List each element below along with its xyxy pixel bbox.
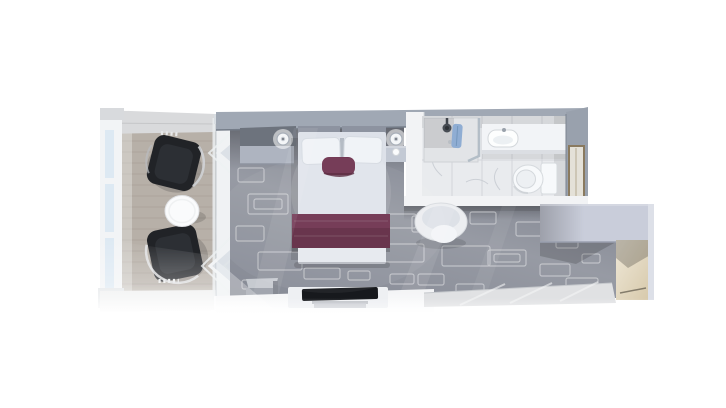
floorplan-render bbox=[0, 0, 726, 408]
bottom-edge-fade bbox=[90, 298, 662, 324]
right-edge-cap bbox=[648, 204, 654, 300]
railing-glass-panel bbox=[105, 130, 114, 178]
walk-in-shower bbox=[424, 118, 479, 162]
cup bbox=[393, 149, 400, 156]
counter-front-edge bbox=[482, 150, 566, 154]
toilet-seat bbox=[517, 170, 536, 188]
railing-glass-panel bbox=[105, 184, 114, 232]
sink-basin bbox=[493, 136, 513, 145]
shower-head-center bbox=[445, 126, 449, 130]
ambient-light bbox=[215, 157, 445, 293]
railing-top-cap bbox=[100, 108, 124, 120]
vanity bbox=[482, 124, 566, 159]
shower-drain bbox=[448, 140, 452, 144]
closet-shade bbox=[540, 204, 584, 242]
counter-shadow bbox=[482, 154, 566, 159]
stateroom-floorplan-svg bbox=[0, 0, 726, 408]
faucet bbox=[502, 128, 506, 132]
blue-towel bbox=[451, 124, 463, 149]
toilet bbox=[513, 163, 557, 194]
